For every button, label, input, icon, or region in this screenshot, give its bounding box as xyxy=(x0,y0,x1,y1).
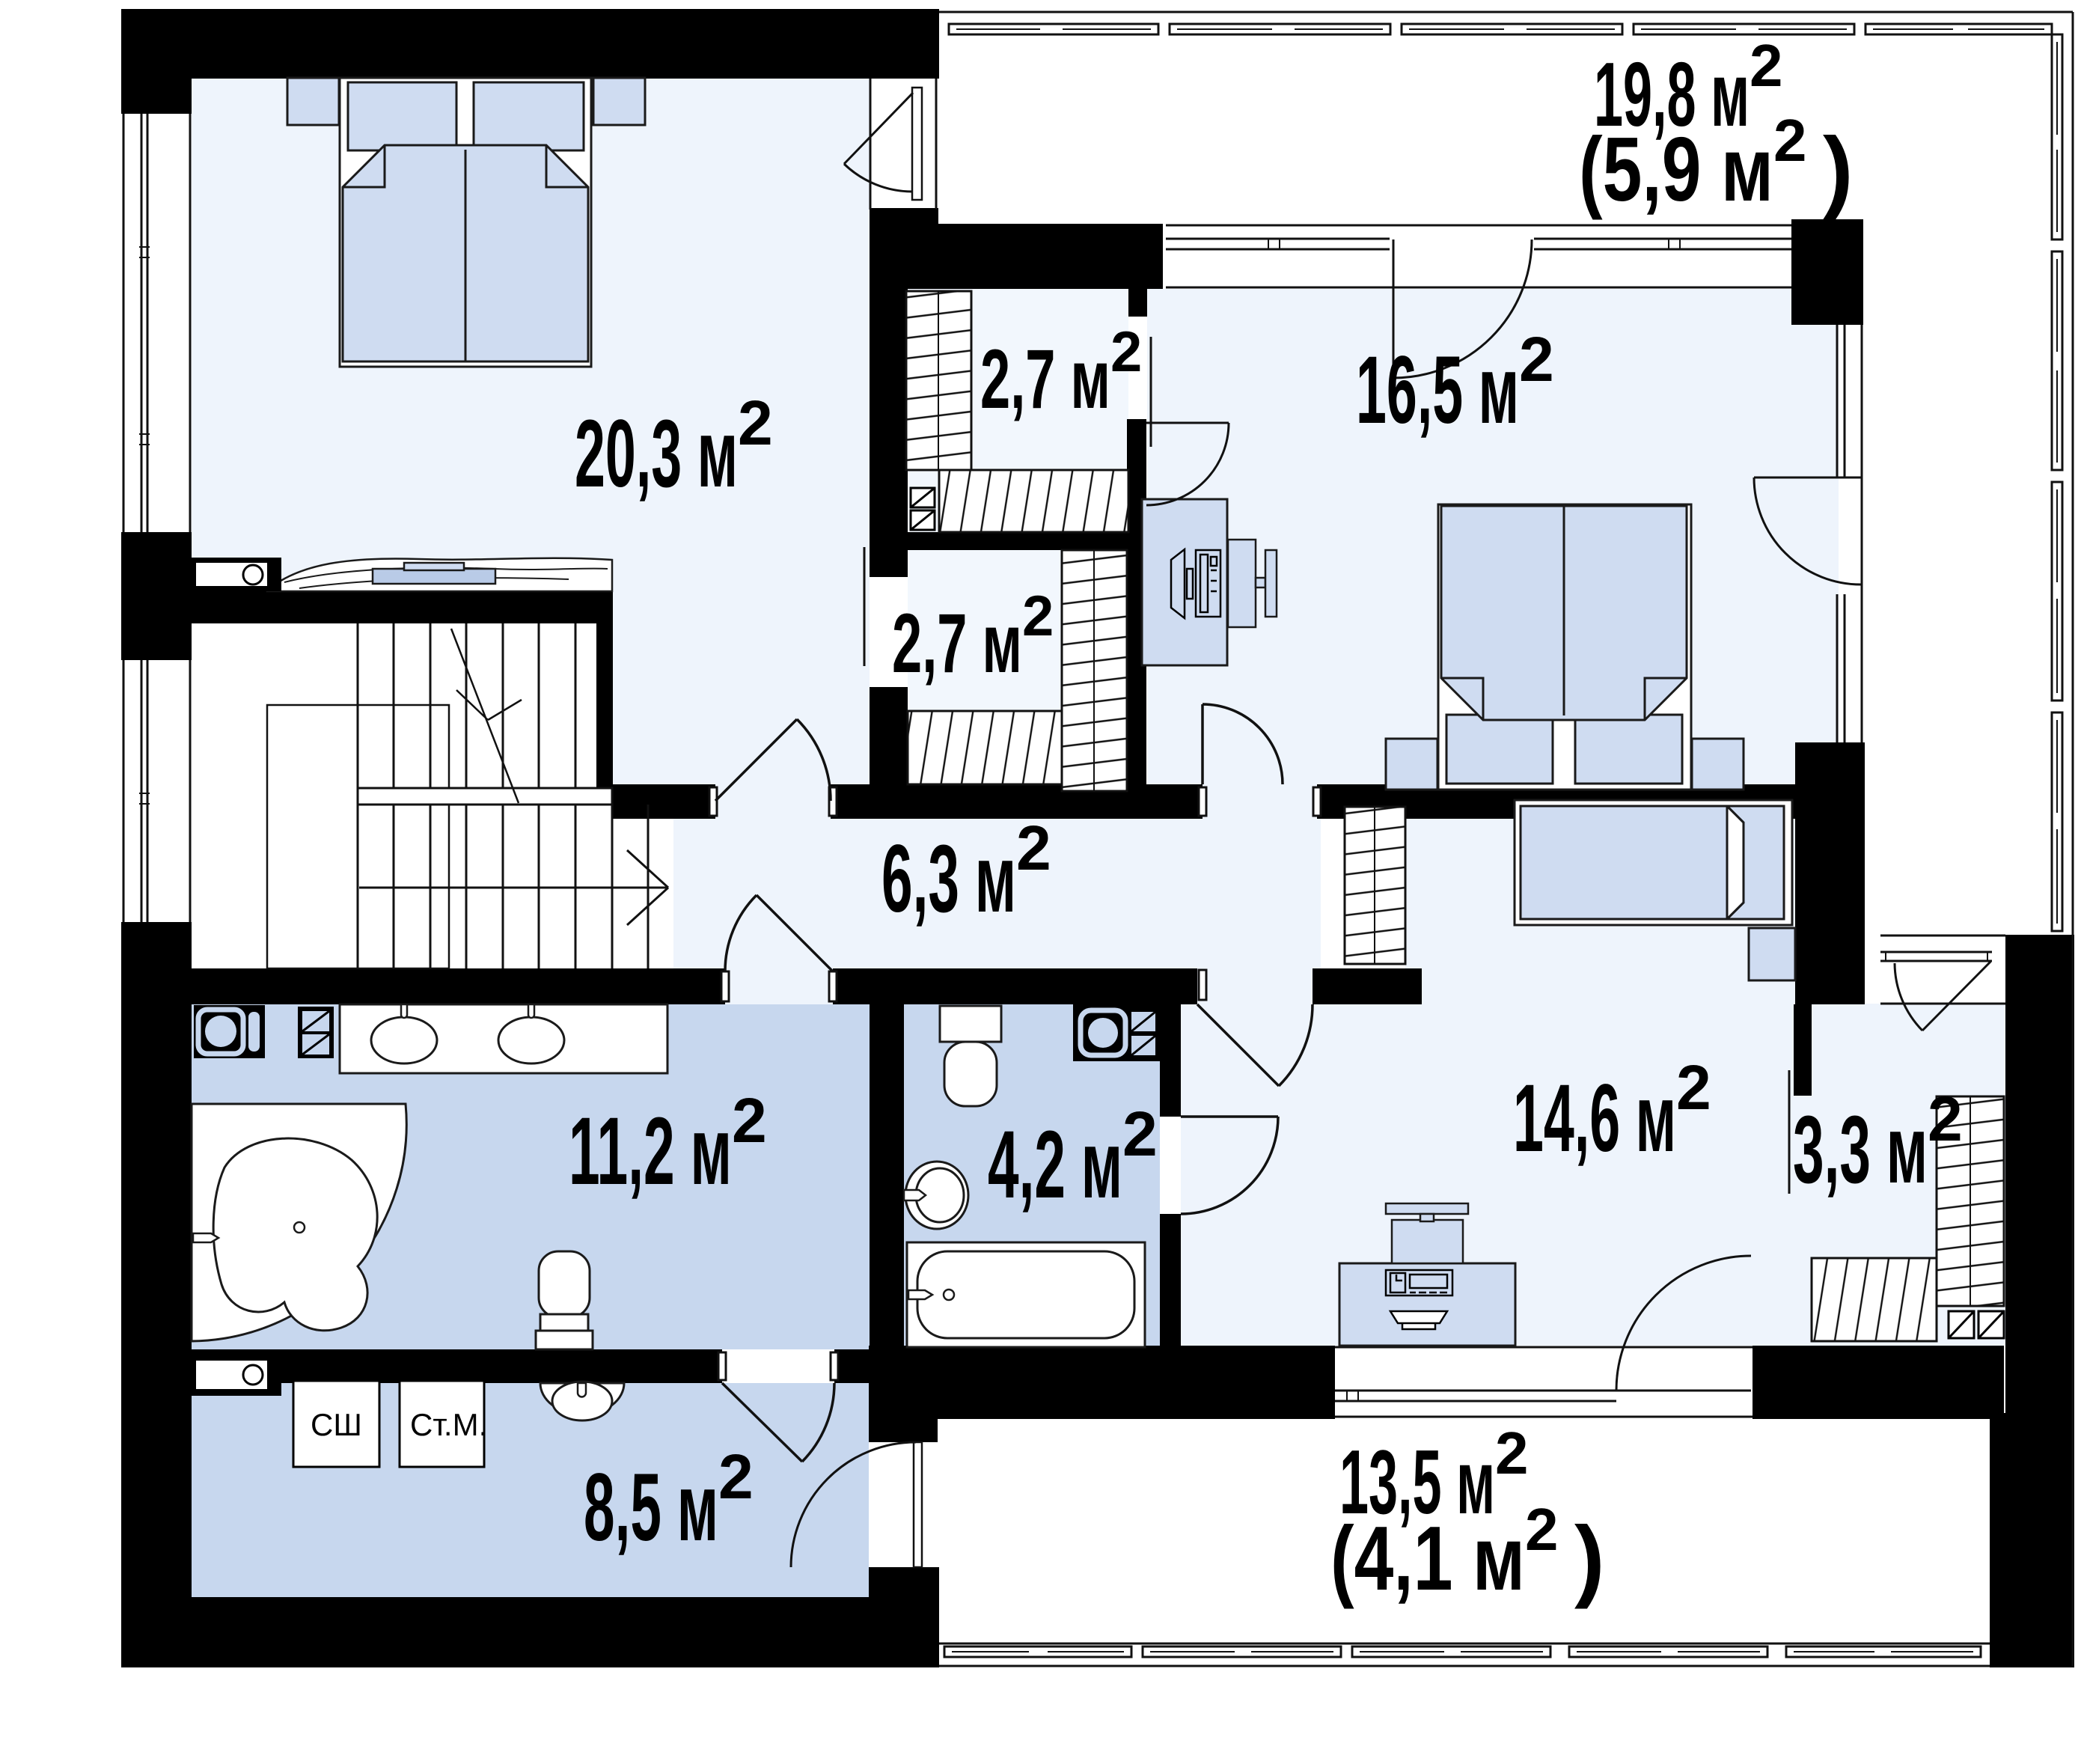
svg-text:Ст.М.: Ст.М. xyxy=(410,1407,487,1442)
svg-text:2: 2 xyxy=(1773,107,1807,174)
svg-text:4,2 м: 4,2 м xyxy=(988,1111,1122,1218)
svg-text:20,3 м: 20,3 м xyxy=(575,400,738,507)
svg-text:16,5 м: 16,5 м xyxy=(1356,337,1519,444)
svg-text:): ) xyxy=(1823,118,1854,220)
svg-text:3,3 м: 3,3 м xyxy=(1793,1096,1928,1203)
svg-text:11,2 м: 11,2 м xyxy=(569,1098,732,1205)
svg-text:СШ: СШ xyxy=(311,1407,362,1442)
svg-text:2: 2 xyxy=(1750,32,1783,99)
svg-text:14,6 м: 14,6 м xyxy=(1513,1065,1676,1172)
svg-text:2,7 м: 2,7 м xyxy=(980,332,1110,426)
svg-text:2: 2 xyxy=(1676,1052,1711,1123)
svg-text:2: 2 xyxy=(1122,1099,1158,1169)
svg-text:2,7 м: 2,7 м xyxy=(892,596,1022,690)
svg-text:2: 2 xyxy=(1519,324,1554,394)
svg-text:2: 2 xyxy=(732,1085,767,1156)
svg-text:2: 2 xyxy=(718,1441,754,1512)
svg-text:2: 2 xyxy=(1110,320,1142,384)
svg-text:2: 2 xyxy=(1495,1420,1529,1486)
svg-text:(4,1 м: (4,1 м xyxy=(1330,1507,1525,1609)
svg-text:2: 2 xyxy=(1525,1496,1559,1563)
svg-text:2: 2 xyxy=(738,388,773,458)
svg-text:): ) xyxy=(1574,1507,1605,1609)
svg-text:2: 2 xyxy=(1016,813,1051,883)
svg-text:8,5 м: 8,5 м xyxy=(584,1454,718,1561)
svg-text:2: 2 xyxy=(1928,1084,1963,1154)
svg-text:6,3 м: 6,3 м xyxy=(881,825,1016,933)
svg-text:(5,9 м: (5,9 м xyxy=(1579,118,1773,220)
svg-text:2: 2 xyxy=(1022,585,1054,648)
